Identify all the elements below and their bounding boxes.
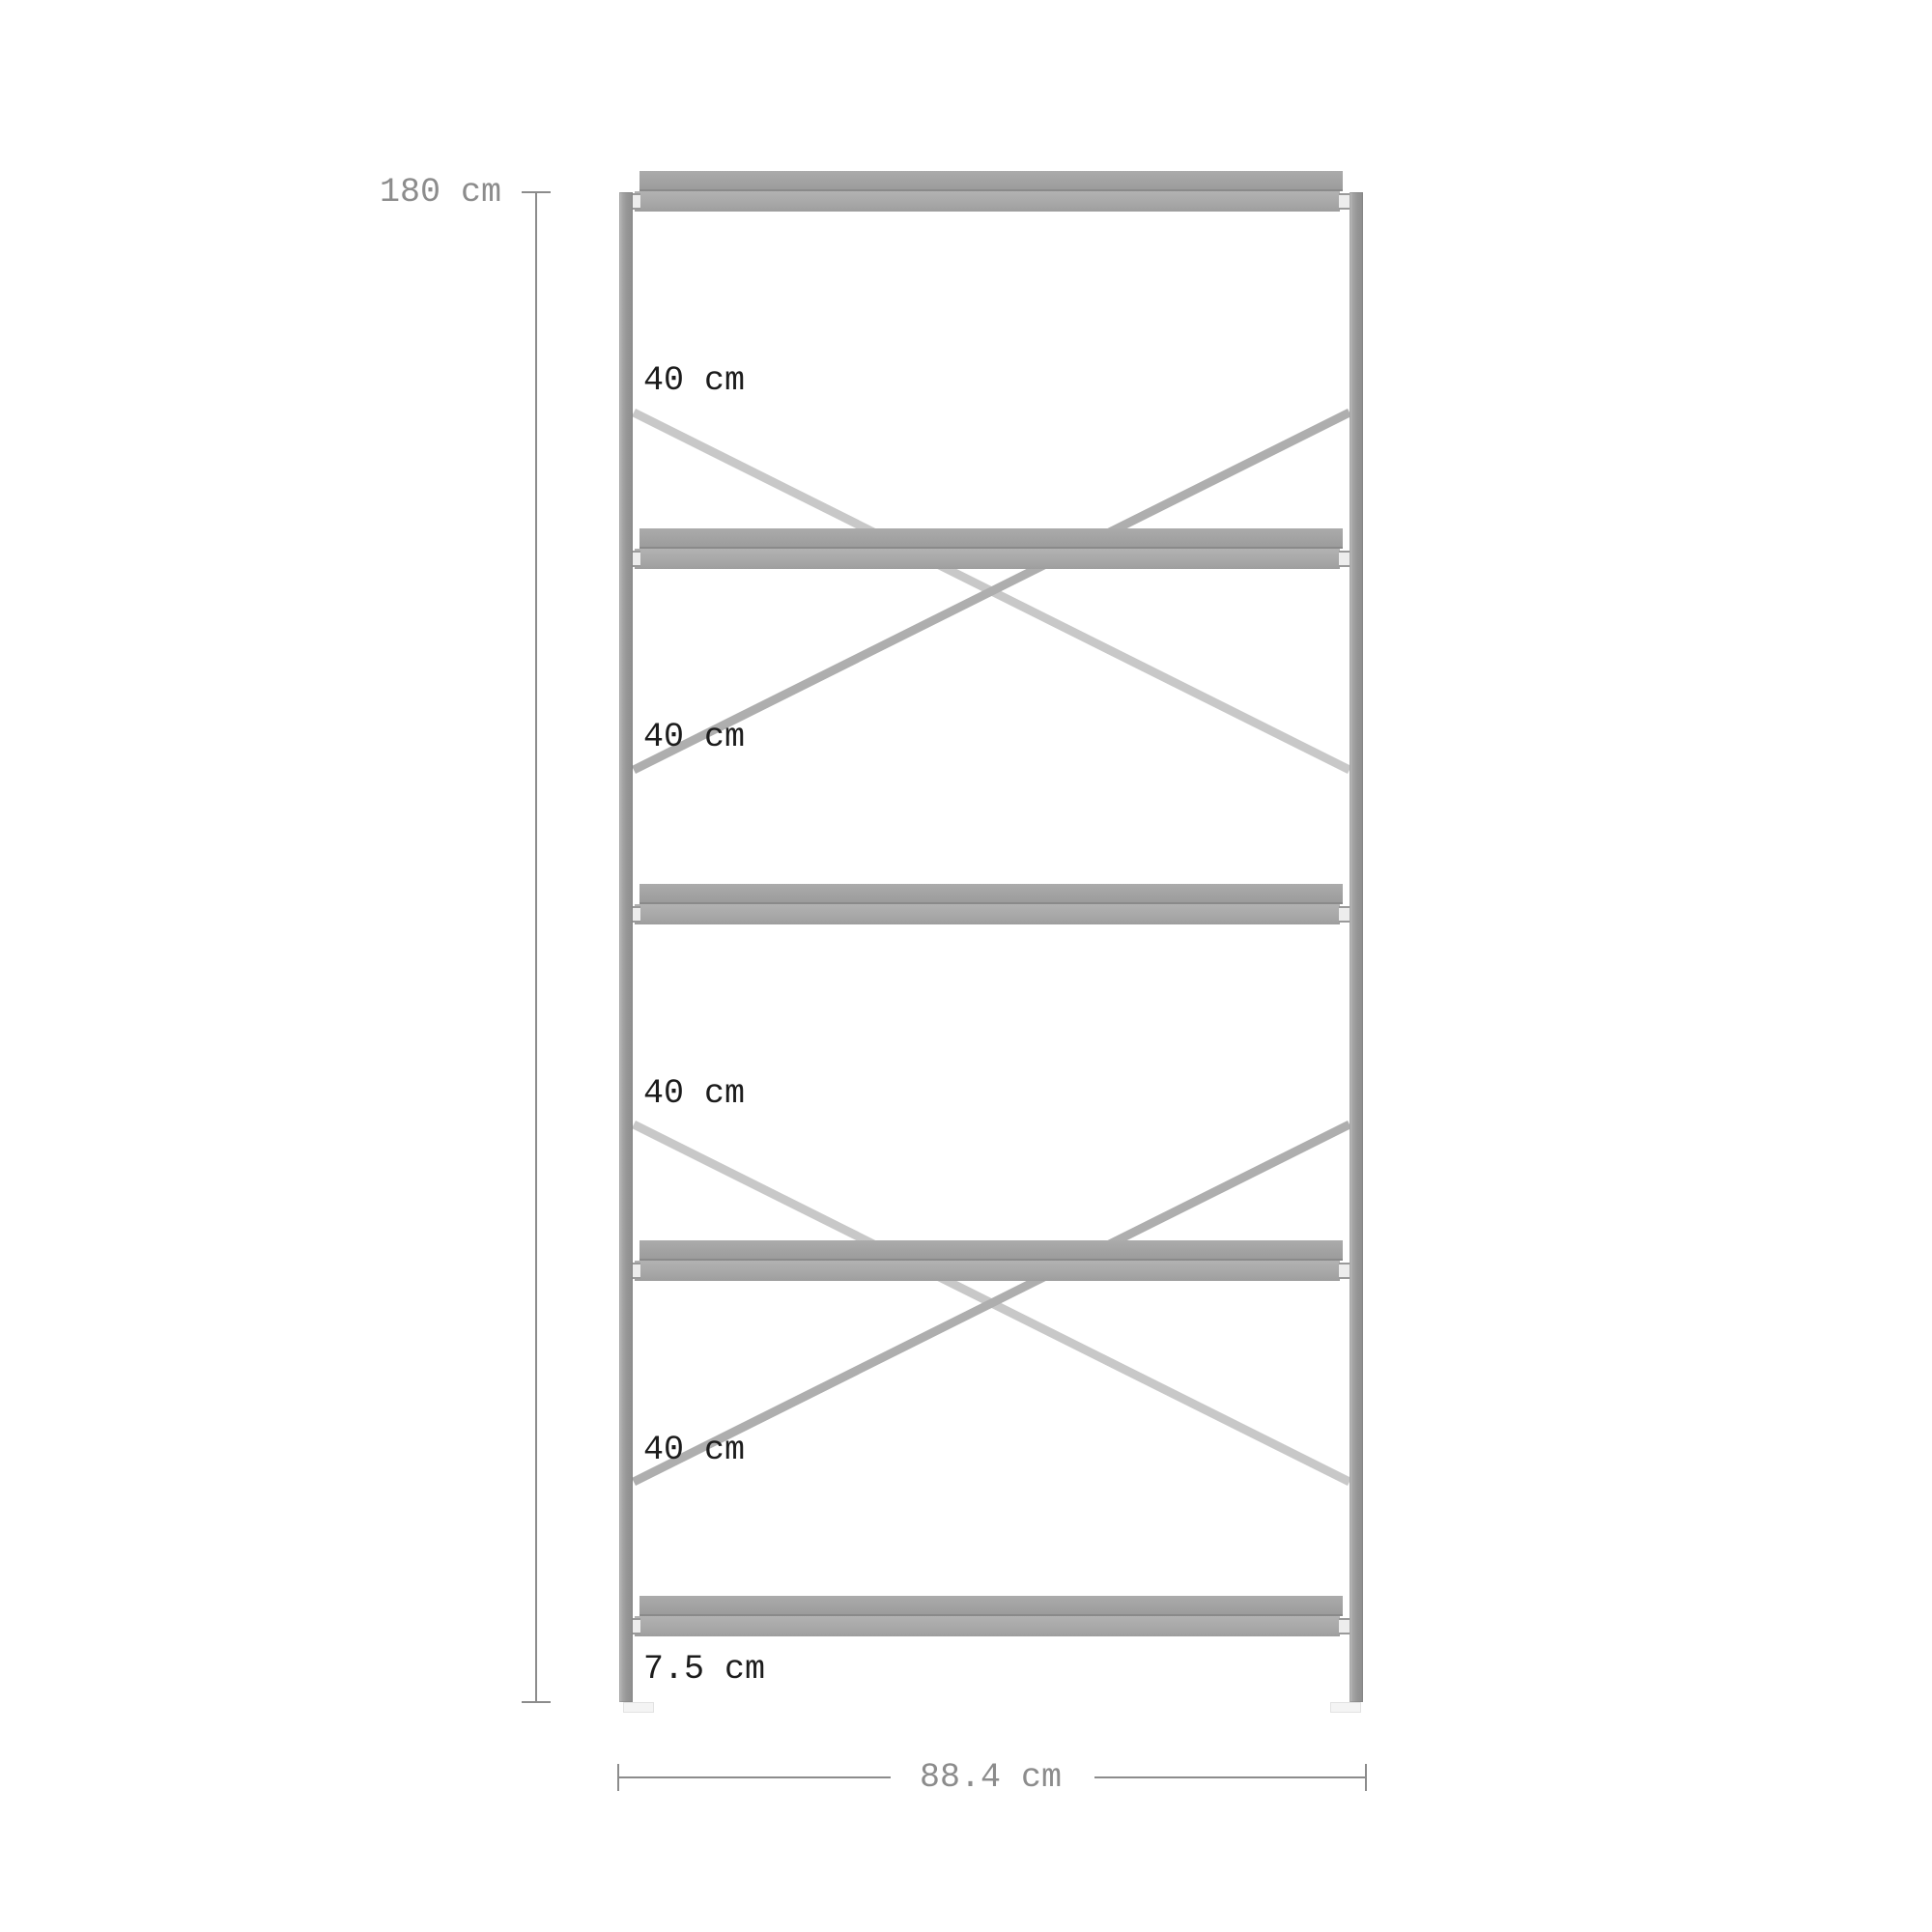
height-dimension-line xyxy=(522,192,551,1702)
shelf-top-panel xyxy=(639,171,1343,191)
shelf-bracket-left xyxy=(632,1263,640,1279)
post-foot-right xyxy=(1330,1702,1361,1713)
shelf-level-5 xyxy=(632,1596,1350,1636)
shelf-beam xyxy=(635,1261,1340,1281)
cross-brace-lower xyxy=(634,1124,1350,1482)
shelf-bracket-right xyxy=(1339,1618,1350,1634)
cross-brace-upper xyxy=(634,412,1350,770)
shelf-level-4 xyxy=(632,1240,1350,1281)
shelf-bracket-right xyxy=(1339,1263,1350,1279)
height-dimension-label: 180 cm xyxy=(380,176,501,210)
section-spacing-label-4: 40 cm xyxy=(643,1434,745,1467)
section-spacing-label-2: 40 cm xyxy=(643,721,745,754)
shelf-bracket-right xyxy=(1339,193,1350,210)
shelf-top-panel xyxy=(639,884,1343,904)
frame-post-right xyxy=(1350,192,1363,1702)
shelving-dimension-diagram: 180 cm 88.4 cm 40 cm 40 cm 40 cm 40 cm 7… xyxy=(0,0,1932,1932)
line-layer xyxy=(0,0,1932,1932)
shelf-bracket-left xyxy=(632,906,640,923)
shelf-bracket-left xyxy=(632,193,640,210)
section-spacing-label-1: 40 cm xyxy=(643,364,745,398)
section-spacing-label-3: 40 cm xyxy=(643,1077,745,1111)
post-foot-left xyxy=(623,1702,654,1713)
shelf-bracket-left xyxy=(632,1618,640,1634)
frame-post-left xyxy=(619,192,633,1702)
shelf-top-panel xyxy=(639,1596,1343,1616)
shelf-bracket-right xyxy=(1339,551,1350,567)
width-dimension-label: 88.4 cm xyxy=(920,1761,1062,1795)
shelf-level-3 xyxy=(632,884,1350,924)
shelf-beam xyxy=(635,1616,1340,1636)
shelf-top-panel xyxy=(639,528,1343,549)
bottom-clearance-label: 7.5 cm xyxy=(643,1653,765,1687)
shelf-beam xyxy=(635,904,1340,924)
shelf-beam xyxy=(635,191,1340,212)
shelf-bracket-right xyxy=(1339,906,1350,923)
shelf-top-panel xyxy=(639,1240,1343,1261)
shelf-beam xyxy=(635,549,1340,569)
shelf-level-2 xyxy=(632,528,1350,569)
shelf-bracket-left xyxy=(632,551,640,567)
shelf-level-1 xyxy=(632,171,1350,212)
